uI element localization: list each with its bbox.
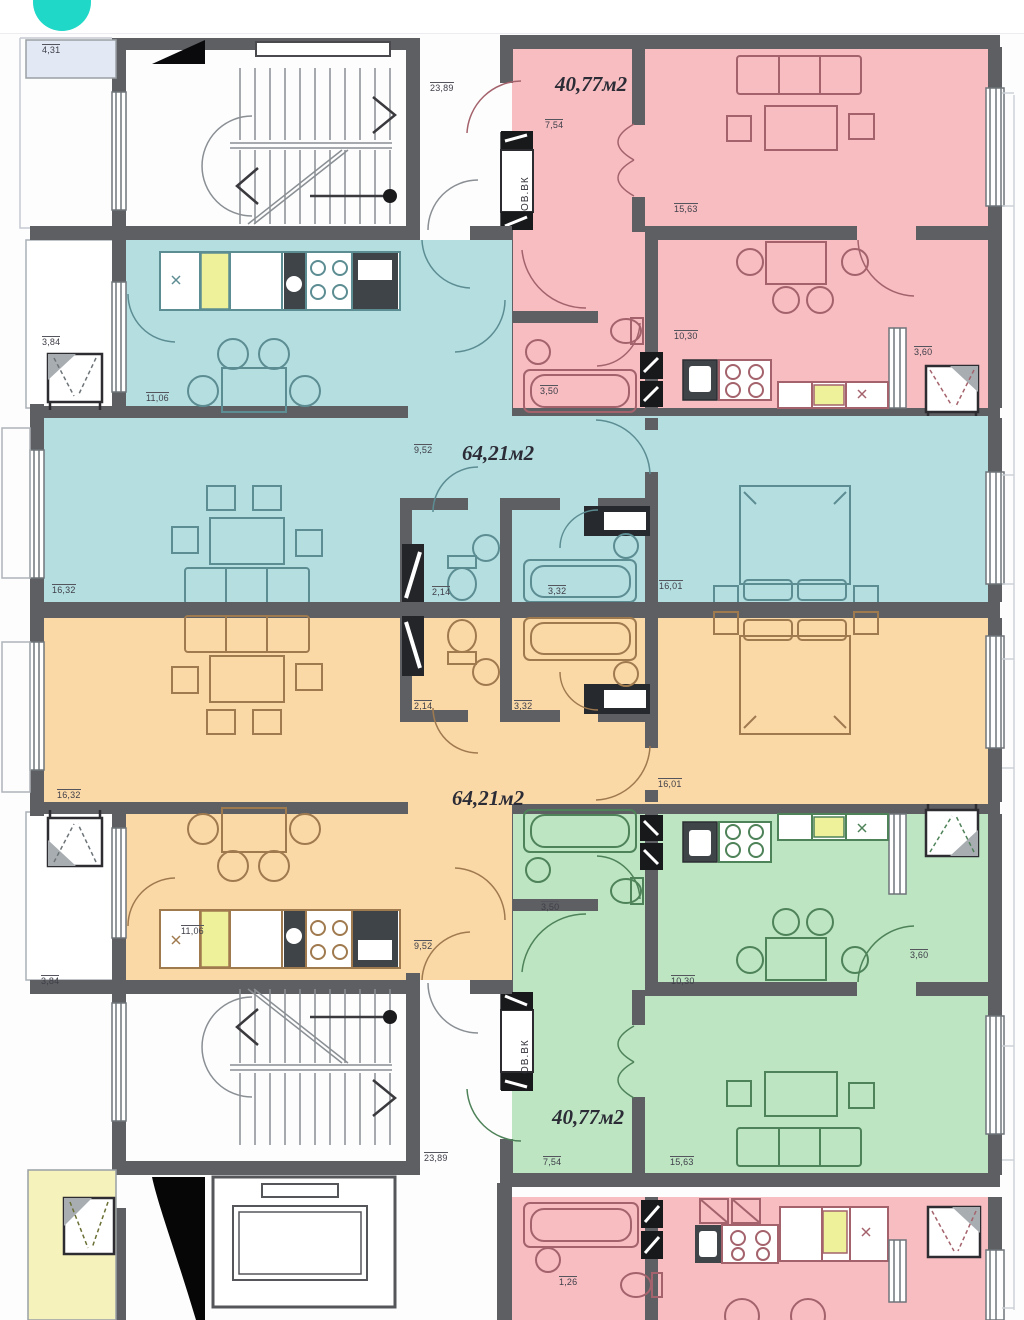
apartment-pink-bottom-partial	[512, 1197, 1004, 1320]
apartment-green-bottom	[467, 801, 1004, 1187]
staircase-bottom	[112, 973, 478, 1175]
floor-plan-page: 4,31 23,89 40,77м2 7,54 15,63 ОВ.ВК 3,50…	[0, 0, 1024, 1320]
top-app-bar	[0, 0, 1024, 34]
balcony-top-left	[20, 38, 116, 228]
staircase-top	[112, 38, 478, 240]
floor-plan-drawing	[0, 0, 1024, 1320]
balcony-bottom-left	[28, 1170, 116, 1320]
apartment-pink-top	[467, 35, 1004, 421]
elevator-block-bottom	[112, 1161, 512, 1320]
wall-wedge-icon	[152, 1177, 205, 1320]
elevator-car	[233, 1206, 367, 1280]
vestibule-shelf	[256, 42, 390, 56]
app-logo-circle	[33, 0, 91, 31]
